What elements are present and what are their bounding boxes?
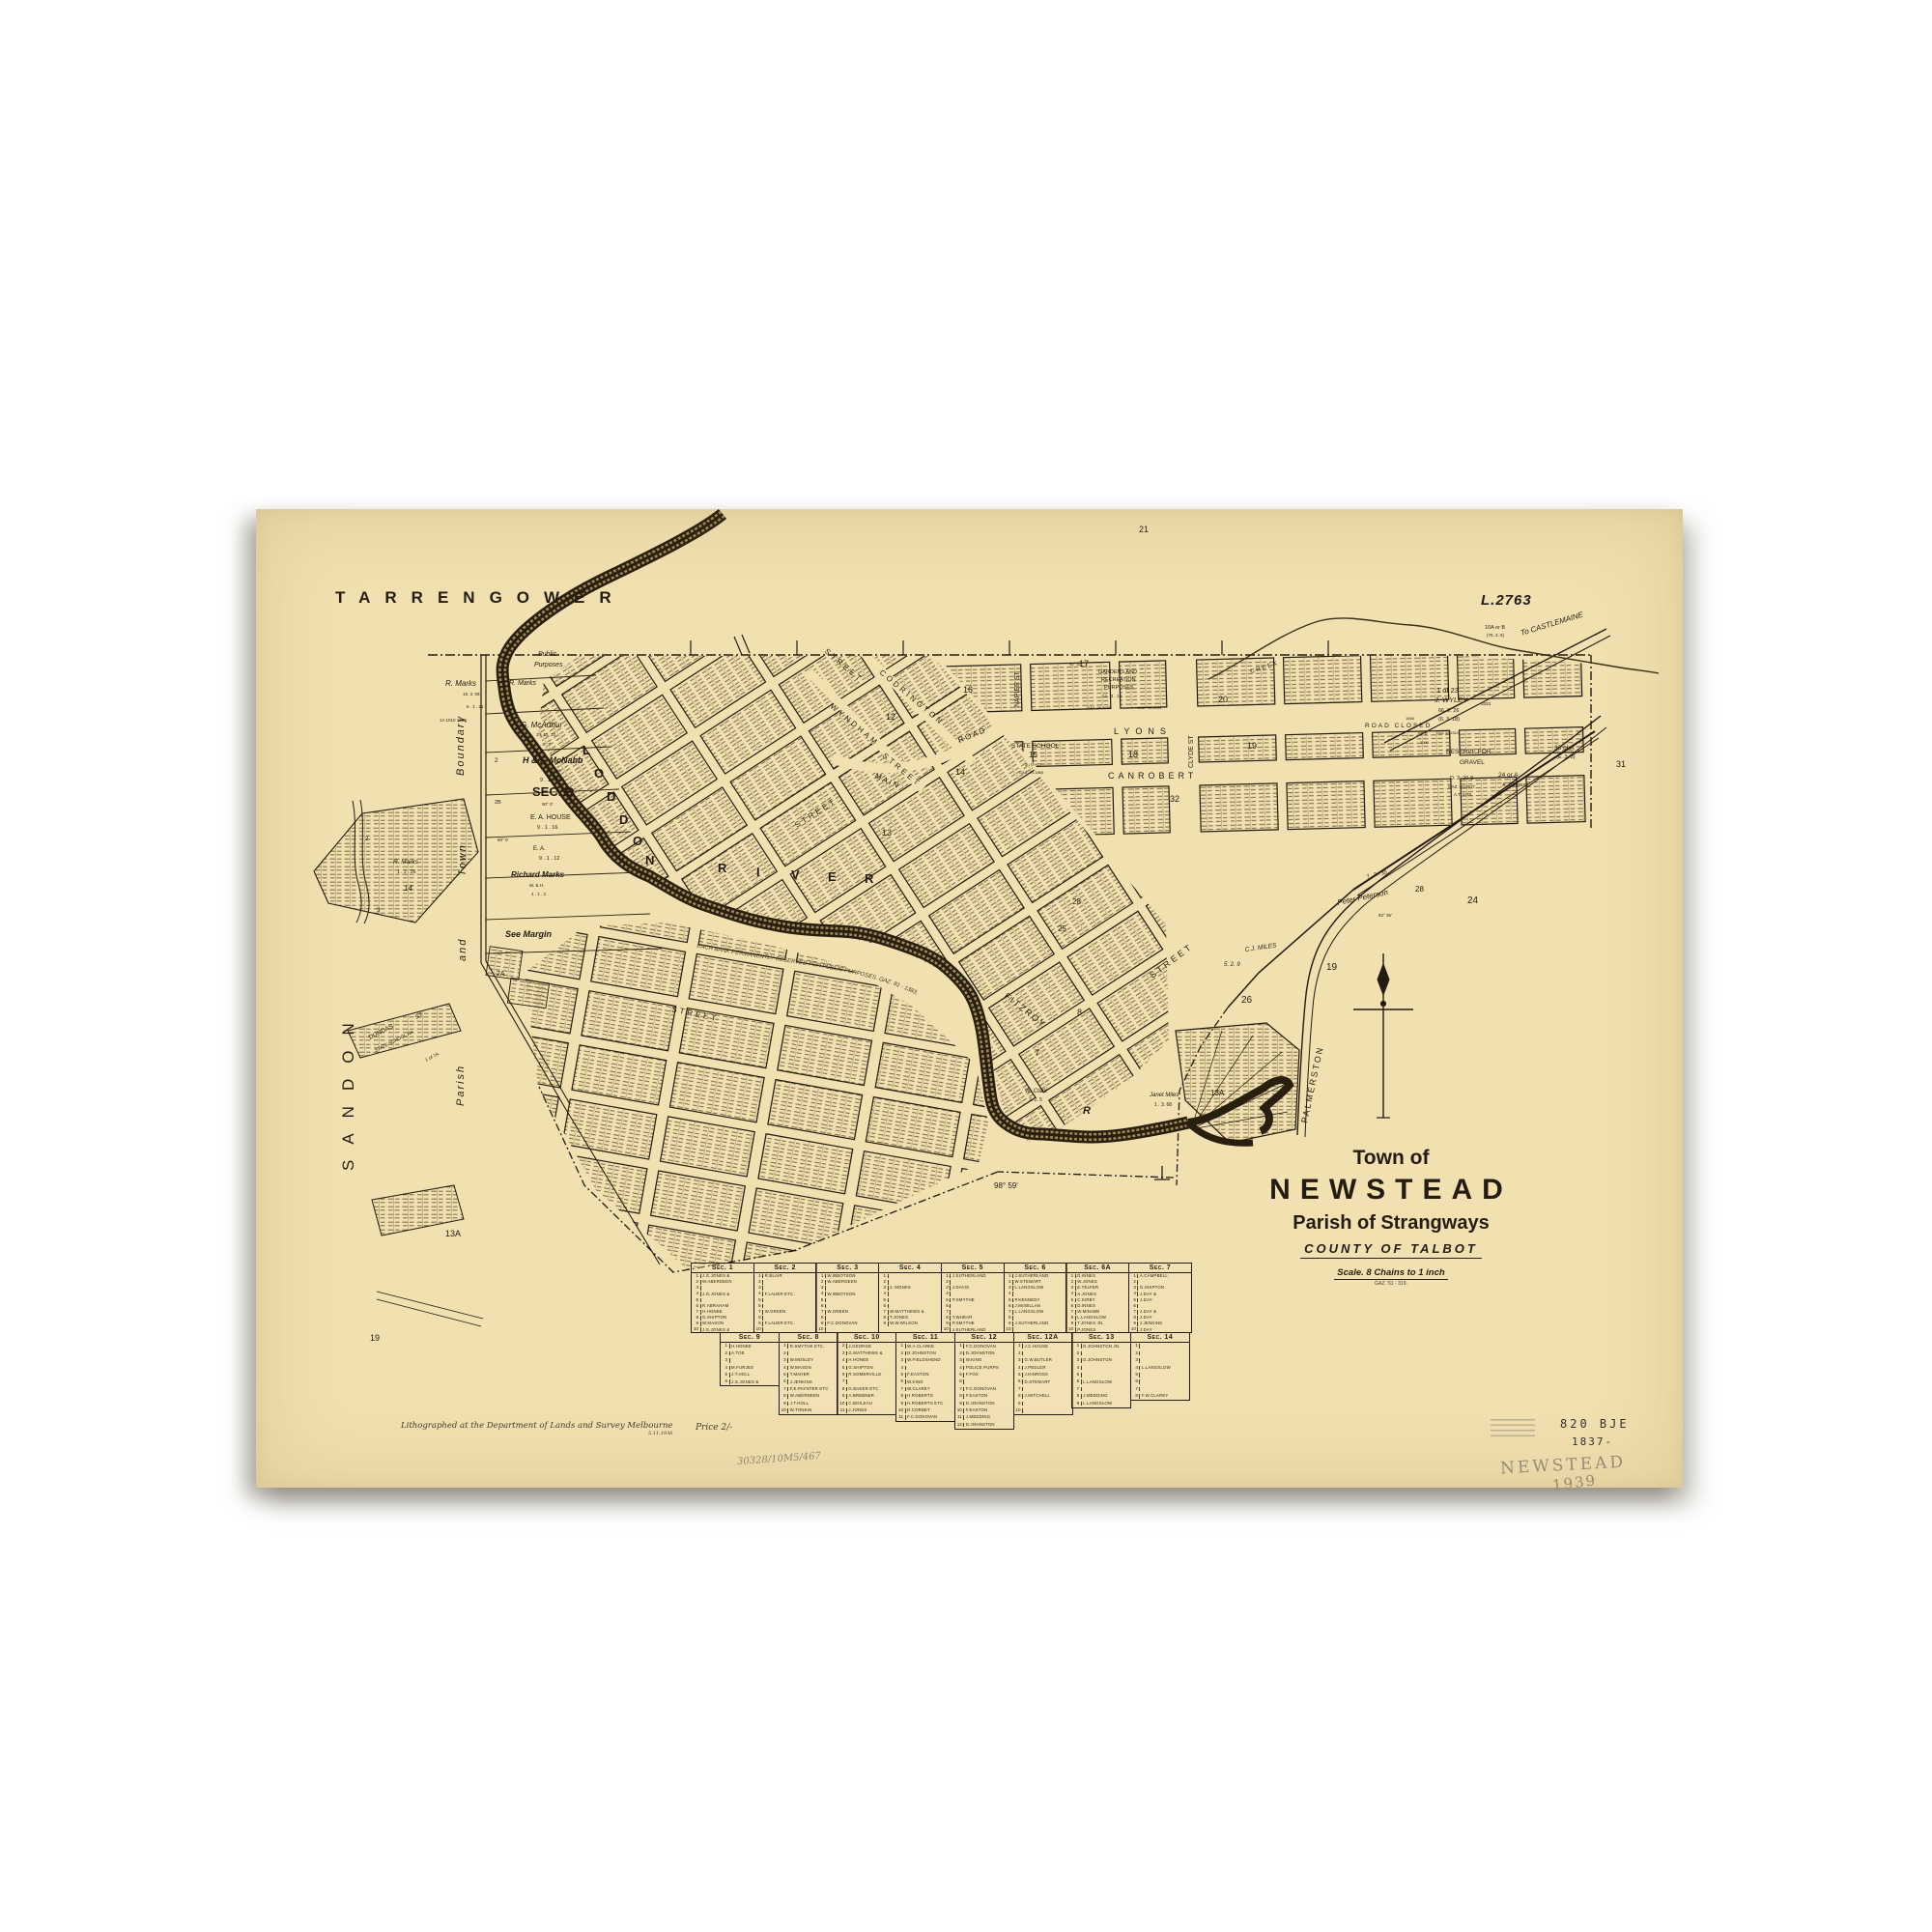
plan-reference: L.2763 [1481, 592, 1532, 609]
map-label: 31 [1616, 759, 1626, 769]
owner-row: 1F.C.DONOVAN [955, 1343, 1013, 1350]
allotment-number: 3 [692, 1286, 701, 1291]
section-title: Sec. 6A [1066, 1264, 1128, 1273]
allotment-number: 4 [1129, 1292, 1139, 1296]
map-label: R. Marks [445, 679, 476, 688]
allotment-number: 7 [692, 1310, 701, 1315]
town-block [543, 1207, 638, 1267]
owner-name: W.IBBOTSON [826, 1274, 856, 1278]
owner-name: F.EASTON [906, 1373, 929, 1377]
allotment-number: 7 [838, 1379, 847, 1384]
lithograph-date: 5.11.1936 [401, 1431, 672, 1436]
owner-name: T.MAHER [788, 1373, 810, 1377]
owner-row: 10C.BOILEAU [838, 1400, 895, 1406]
owner-name: D.JOHNSTON [964, 1351, 994, 1355]
stamp-smudge [1491, 1419, 1535, 1440]
allotment-number: 7 [955, 1387, 965, 1392]
allotment-number: 4 [1072, 1366, 1082, 1371]
map-label: 14 [404, 884, 412, 893]
map-label: 19 [1326, 962, 1338, 973]
allotment-number: 7 [816, 1310, 826, 1315]
map-label: W. & H. [529, 883, 544, 888]
allotment-number: 8 [942, 1316, 952, 1321]
owner-row: 7 [1131, 1385, 1189, 1392]
owner-row: 9 [1014, 1400, 1072, 1406]
owner-name: H.HONEE [701, 1310, 723, 1314]
map-label: 9 . 1 . 16 [537, 825, 557, 831]
allotment-number: 3 [754, 1286, 764, 1291]
allotment-number: 5 [1131, 1373, 1141, 1378]
town-block [866, 1097, 960, 1157]
owner-name: J.G.JONES & [701, 1293, 730, 1296]
boundary-word-and: and [457, 923, 469, 961]
owner-name: M.FURJES [730, 1366, 754, 1370]
town-block [1199, 735, 1277, 762]
section-title: Sec. 6 [1005, 1264, 1066, 1273]
owner-name: W.GREEN [763, 1310, 785, 1314]
map-label: Janet Miles [1149, 1093, 1179, 1098]
owner-name: G.SHIPTON [701, 1316, 727, 1320]
section-title: Sec. 14 [1131, 1333, 1189, 1343]
map-label: GAZ. 98-3035 [1087, 705, 1112, 710]
allotment-number: 7 [780, 1387, 789, 1392]
town-block [277, 899, 373, 983]
owner-name: P.SMYTHE [951, 1298, 975, 1302]
owner-row: 8J.MEDDING [1072, 1393, 1130, 1400]
allotment-number: 9 [1005, 1321, 1014, 1326]
owner-name: W.CLAREY [906, 1387, 930, 1391]
owner-row: 3 [1131, 1357, 1189, 1364]
allotment-number: 3 [1131, 1358, 1141, 1363]
allotment-number: 8 [1066, 1316, 1076, 1321]
town-block [1122, 786, 1170, 834]
allotment-number: 5 [1005, 1298, 1014, 1303]
map-label: GRAVEL [1460, 759, 1485, 766]
owner-name: W.MASON [701, 1321, 724, 1325]
section-column: Sec. 121F.C.DONOVAN2D.JOHNSTON3W.KING4PO… [954, 1332, 1014, 1430]
allotment-number: 11 [896, 1415, 906, 1420]
map-label: NAPIER ST [1014, 670, 1021, 707]
map-label: CLYDE ST [1188, 735, 1195, 768]
owner-row: 9H.ROBERTS ETC [896, 1400, 954, 1406]
map-label: 25 [1058, 924, 1066, 933]
map-label: PALMERSTON [1299, 1045, 1325, 1123]
owner-row: 7 [1072, 1385, 1130, 1392]
map-label: C.J. MILES [1244, 942, 1277, 953]
owner-row: 4POLICE PURPS [955, 1364, 1013, 1371]
map-label: 5. 2. 9 [1224, 962, 1240, 968]
owner-name: W.W.WILSON [889, 1321, 918, 1325]
owner-name: F.LAUER ETC. [763, 1293, 795, 1296]
owner-name: D.INNES [1076, 1304, 1095, 1308]
owner-row: 1H.HONEE [721, 1343, 779, 1350]
map-label: SEC. D [532, 784, 574, 799]
owner-name: D.JOHNSTON [1082, 1358, 1112, 1362]
section-column: Sec. 141234L.LANGSLOW5678F.W.CLAREY [1130, 1332, 1190, 1401]
owner-name: W.ABERDEEN [788, 1394, 819, 1398]
town-block [768, 1080, 863, 1140]
owner-name: R.SOMERVILLE [847, 1373, 882, 1377]
allotment-number: 1 [879, 1274, 889, 1279]
map-label: 12 [886, 712, 895, 722]
allotment-number: 3 [879, 1286, 889, 1291]
allotment-number: 9 [1129, 1321, 1139, 1326]
allotment-number: 5 [1072, 1373, 1082, 1378]
map-label: 24 [1467, 895, 1479, 906]
owner-row: 8F.W.CLAREY [1131, 1393, 1189, 1400]
allotment-number: 6 [1014, 1379, 1024, 1384]
owner-name: G.W.BUTLER [1023, 1358, 1052, 1362]
allotment-number: 4 [1014, 1366, 1024, 1371]
town-block [256, 807, 313, 891]
owner-name: F.EASTON [964, 1408, 987, 1412]
owner-row: 8W.ABERDEEN [780, 1393, 838, 1400]
town-block [1287, 781, 1365, 830]
allotment-number: 9 [942, 1321, 952, 1326]
allotment-number: 2 [1072, 1351, 1082, 1356]
map-label: A. Burgess [1501, 782, 1528, 788]
map-label: R. Marks [509, 680, 537, 687]
section-title: Sec. 2 [754, 1264, 816, 1273]
allotment-number: 4 [896, 1366, 906, 1371]
owner-name: L.LANGSLOW [1076, 1316, 1106, 1320]
map-label: (E. 3. 3) [1556, 754, 1576, 760]
map-label: GAZ. 45/3877 [1448, 784, 1476, 789]
owner-row: 9J.T.HOLL [780, 1400, 838, 1406]
owner-name: L.LANGSLOW [1140, 1366, 1170, 1370]
owner-name: W.KING [964, 1358, 981, 1362]
owner-row: 5 [1131, 1372, 1189, 1378]
allotment-number: 6 [816, 1304, 826, 1309]
map-label: 18 [1128, 750, 1138, 759]
town-block [1292, 569, 1387, 653]
owner-name: W.KING [906, 1380, 923, 1384]
allotment-number: 2 [754, 1280, 764, 1285]
town-block [474, 1028, 569, 1088]
map-label: 24 or A [1498, 772, 1519, 779]
allotment-number: 3 [780, 1358, 789, 1363]
allotment-number: 4 [955, 1366, 965, 1371]
sections-row-1: Sec. 11J.G.JONES &2W.ABERDEEN34J.G.JONES… [691, 1263, 1212, 1333]
section-title: Sec. 3 [816, 1264, 878, 1273]
allotment-number: 10 [780, 1408, 789, 1413]
section-column: Sec. 4123J. MONKS4567W.MATTHEWS &8T.JONE… [878, 1263, 942, 1333]
owner-name: T.JONES JN. [1076, 1321, 1104, 1325]
town-block [562, 1099, 657, 1159]
owner-name: A.JONES [1076, 1293, 1096, 1296]
map-label: Peter Peterson [1337, 888, 1390, 907]
allotment-number: 5 [1129, 1298, 1139, 1303]
allotment-number: 4 [721, 1366, 730, 1371]
owner-name: J.G.JONES & [701, 1274, 730, 1278]
town-block [1044, 532, 1140, 616]
town-block [689, 953, 783, 1013]
section-column: Sec. 131D.JOHNSTON JN.23D.JOHNSTON456L.L… [1071, 1332, 1131, 1408]
owner-name: G.MATTHEWS & [847, 1351, 883, 1355]
owner-row: 3D.JOHNSTON [1072, 1357, 1130, 1364]
town-block [1153, 527, 1249, 611]
allotment-number: 4 [838, 1358, 847, 1363]
allotment-number: 8 [780, 1394, 789, 1399]
map-label: (6. 3. 18) [1438, 717, 1460, 723]
map-label: 14 [955, 767, 965, 777]
allotment-number: 5 [816, 1298, 826, 1303]
map-label: (76. 3. 9) [1487, 633, 1505, 638]
owner-name: L.LANGSLOW [1013, 1310, 1043, 1314]
owner-name: W.STEWART [1013, 1280, 1041, 1284]
section-title: Sec. 12A [1014, 1333, 1072, 1343]
owner-row: 5F.EASTON [896, 1372, 954, 1378]
allotment-number: 3 [721, 1358, 730, 1363]
owner-row: 1R.SMYTHE ETC. [780, 1343, 838, 1350]
owner-name: J.KINROSS [1023, 1373, 1048, 1377]
owner-name: J.GEORGE [847, 1345, 871, 1349]
town-block [1123, 509, 1219, 565]
map-label: 90° 0' [497, 838, 509, 842]
map-label: 33 or A [1554, 745, 1575, 752]
allotment-number: 8 [1129, 1316, 1139, 1321]
town-block [488, 1222, 583, 1306]
town-block [1094, 509, 1189, 519]
map-label: E [828, 869, 837, 884]
owner-row: 2A.TOE [721, 1350, 779, 1356]
map-label: 26 [1241, 995, 1253, 1006]
owner-row: 3W.KING [955, 1357, 1013, 1364]
map-label: ROAD CLOSED [1365, 723, 1432, 729]
owner-name: J.DAY & [1138, 1310, 1156, 1314]
map-label: GAZ. 96-3044 [1137, 705, 1162, 710]
owner-name: W.ABERDEEN [701, 1280, 732, 1284]
map-label: 1 of 7A [424, 1051, 440, 1064]
map-label: PURPOSES [1104, 685, 1134, 691]
owner-name: W.ABERDEEN [826, 1280, 857, 1284]
owner-row: 7 [838, 1378, 895, 1385]
owner-row: 6 [955, 1378, 1013, 1385]
owner-name: P.KENNEDY [1013, 1298, 1040, 1302]
owner-row: 3W.FIELDSHEND [896, 1357, 954, 1364]
map-label: R. Marks [393, 859, 419, 866]
meridian-mark [1353, 953, 1413, 1118]
owner-row: 4W.MASON [780, 1364, 838, 1371]
owner-row: 2 [1014, 1350, 1072, 1356]
town-block [954, 1169, 1049, 1229]
allotment-number: 10 [838, 1402, 847, 1406]
allotment-number: 1 [1005, 1274, 1014, 1279]
owner-name: W.MINABB [1076, 1310, 1100, 1314]
town-block [458, 1176, 554, 1260]
allotment-number: 9 [816, 1321, 826, 1326]
owner-name: D.JOHNSTON [906, 1351, 936, 1355]
allotment-number: 10 [692, 1327, 701, 1332]
owner-name: W.TONKIN [788, 1408, 811, 1412]
section-title: Sec. 4 [879, 1264, 941, 1273]
map-label: 1666 [1406, 716, 1415, 721]
map-label: 7 [1035, 1048, 1039, 1058]
map-label: 1000 [1420, 740, 1430, 745]
town-block [798, 509, 894, 580]
owner-row: 10W.TONKIN [780, 1407, 838, 1414]
owner-name: W.MASON [788, 1366, 811, 1370]
town-block [1526, 776, 1585, 824]
town-block [1202, 509, 1297, 514]
map-label: R [718, 861, 727, 875]
allotment-number: 9 [896, 1402, 906, 1406]
owner-row: 5F.FOX [955, 1372, 1013, 1378]
map-label: 9 . 1 . 12 [539, 856, 559, 862]
town-block [366, 1065, 461, 1124]
allotment-number: 9 [1066, 1321, 1076, 1326]
owner-row: 9L.LANGSLOW [1072, 1400, 1130, 1406]
allotment-number: 6 [1129, 1304, 1139, 1309]
town-block [828, 542, 923, 626]
owner-row: 2 [1131, 1350, 1189, 1356]
allotment-number: 6 [780, 1379, 789, 1384]
map-label: J. WYLEY [1434, 696, 1468, 704]
map-label: 2. 2. 5 [1029, 1097, 1042, 1103]
owner-name: T.JONES [889, 1316, 909, 1320]
town-block [875, 1042, 970, 1102]
owner-name: J.T.HOLL [788, 1402, 809, 1406]
owner-row: 8J.MITCHELL [1014, 1393, 1072, 1400]
allotment-number: 3 [1066, 1286, 1076, 1291]
town-block [1286, 733, 1364, 760]
town-block [719, 547, 814, 631]
owner-row: 6D.STEWART [1014, 1378, 1072, 1385]
town-block [984, 509, 1080, 524]
allotment-number: 3 [1014, 1358, 1024, 1363]
map-label: 21 [1139, 525, 1149, 534]
owner-name: L.LANGSLOW [1013, 1286, 1043, 1290]
owner-row: 8G.BAKER ETC [838, 1385, 895, 1392]
town-block [651, 1171, 746, 1231]
allotment-number: 1 [1131, 1344, 1141, 1349]
allotment-number: 5 [780, 1373, 789, 1378]
allotment-number: 7 [1129, 1310, 1139, 1315]
allotment-number: 7 [896, 1387, 906, 1392]
section-title: Sec. 10 [838, 1333, 895, 1343]
town-block [397, 1084, 493, 1168]
owner-name: W.IBBOTSON [826, 1293, 856, 1296]
owner-row: 4M.FURJES [721, 1364, 779, 1371]
town-block [768, 509, 864, 533]
boundary-word-boundary: Boundary [455, 691, 467, 776]
owner-row: 10 [1014, 1407, 1072, 1414]
owner-name: F.C.DONOVAN [826, 1321, 858, 1325]
map-label: RESERVE FOR [1446, 749, 1492, 755]
section-column: Sec. 71A.CAMPBELL23G.SHIPTON4J.DAY &5J.D… [1128, 1263, 1192, 1333]
owner-name: J.T.HOLL [730, 1373, 751, 1377]
owner-name: F.C.DONOVAN [906, 1415, 938, 1419]
allotment-number: 7 [1014, 1387, 1024, 1392]
town-block [548, 1315, 643, 1399]
owner-name: A.BREBNER [847, 1394, 874, 1398]
owner-name: W.MOSLEY [788, 1358, 813, 1362]
town-block [465, 1082, 559, 1142]
allotment-number: 5 [754, 1298, 764, 1303]
allotment-number: 2 [1005, 1280, 1014, 1285]
owner-row: 6J.JENKINS [780, 1378, 838, 1385]
owner-name: F.FOX [964, 1373, 979, 1377]
allotment-number: 8 [1014, 1394, 1024, 1399]
boundary-word-parish: Parish [455, 1038, 467, 1106]
map-label: 8 [1077, 1008, 1082, 1017]
town-block [1014, 509, 1110, 570]
map-label: 92° 35' [1378, 913, 1392, 918]
allotment-number: 2 [942, 1280, 952, 1285]
map-label: 19 [370, 1333, 380, 1343]
allotment-number: 6 [1072, 1379, 1082, 1384]
map-sheet: EACH BANK PERMANENTLY RESERVED FOR PUBLI… [256, 509, 1683, 1488]
owner-row: 9W.W.WILSON [879, 1321, 941, 1327]
owner-name: F.W.CLAREY [1140, 1394, 1168, 1398]
map-label: 6 . 1 . 21 [467, 704, 484, 709]
allotment-number: 2 [1131, 1351, 1141, 1356]
owner-row: 3G.MATTHEWS & [838, 1350, 895, 1356]
owner-name: J.MITCHELL [1023, 1394, 1050, 1398]
allotment-number: 9 [754, 1321, 764, 1326]
allotment-number: 7 [942, 1310, 952, 1315]
screenshot-stage: EACH BANK PERMANENTLY RESERVED FOR PUBLI… [0, 0, 1932, 1932]
owner-name: A.TOE [730, 1351, 745, 1355]
allotment-number: 8 [955, 1394, 965, 1399]
owner-row: 4J.PEDLER [1014, 1364, 1072, 1371]
allotment-number: 9 [1072, 1402, 1082, 1406]
allotment-number: 12 [955, 1423, 965, 1428]
allotment-number: 6 [879, 1304, 889, 1309]
map-label: GAZ. 74-1866 [1019, 770, 1044, 775]
allotment-number: 2 [955, 1351, 965, 1356]
map-label: L [582, 743, 590, 757]
title-newstead: NEWSTEAD [1241, 1174, 1541, 1207]
section-column: Sec. 11J.G.JONES &2W.ABERDEEN34J.G.JONES… [691, 1263, 754, 1333]
town-block [1146, 860, 1241, 944]
owner-row: 2D.JOHNSTON [896, 1350, 954, 1356]
town-block [906, 509, 1002, 575]
owner-row: 10F.EASTON [955, 1407, 1013, 1414]
map-label: H & F. McNabb [523, 755, 583, 765]
section-title: Sec. 8 [780, 1333, 838, 1343]
owner-row: 5G.SHIPTON [838, 1364, 895, 1371]
allotment-number: 2 [1129, 1280, 1139, 1285]
title-town-of: Town of [1241, 1147, 1541, 1170]
map-label: CANROBERT [1108, 771, 1197, 781]
section-title: Sec. 12 [955, 1333, 1013, 1343]
owner-row: 5J.KINROSS [1014, 1372, 1072, 1378]
owner-row: 5T.MAHER [780, 1372, 838, 1378]
allotment-number: 4 [1005, 1292, 1014, 1296]
town-block [591, 937, 686, 997]
owner-name: J.SUTHERLAND [1013, 1321, 1048, 1325]
allotment-number: 8 [1072, 1394, 1082, 1399]
owner-name: C.BOILEAU [847, 1402, 872, 1406]
boundary-word-town: Town [457, 824, 469, 876]
town-block [876, 509, 972, 528]
parcel-13a [372, 1185, 483, 1326]
adjoining-parish-label: TARRENGOWER [335, 588, 626, 608]
owner-name: G.SHIPTON [847, 1366, 873, 1370]
allotment-number: 11 [838, 1408, 847, 1413]
owner-row: 2J.GEORGE [838, 1343, 895, 1350]
allotment-number: 2 [692, 1280, 701, 1285]
allotment-number: 2 [896, 1351, 906, 1356]
owner-row: 9A.BREBNER [838, 1393, 895, 1400]
town-block [1262, 523, 1357, 607]
section-column: Sec. 81R.SMYTHE ETC.23W.MOSLEY4W.MASON5T… [779, 1332, 838, 1415]
allotment-number: 11 [955, 1415, 965, 1420]
allotment-number: 2 [721, 1351, 730, 1356]
owner-name: L.LANGSLOW [1082, 1402, 1112, 1406]
owner-row: 4L.LANGSLOW [1131, 1364, 1189, 1371]
